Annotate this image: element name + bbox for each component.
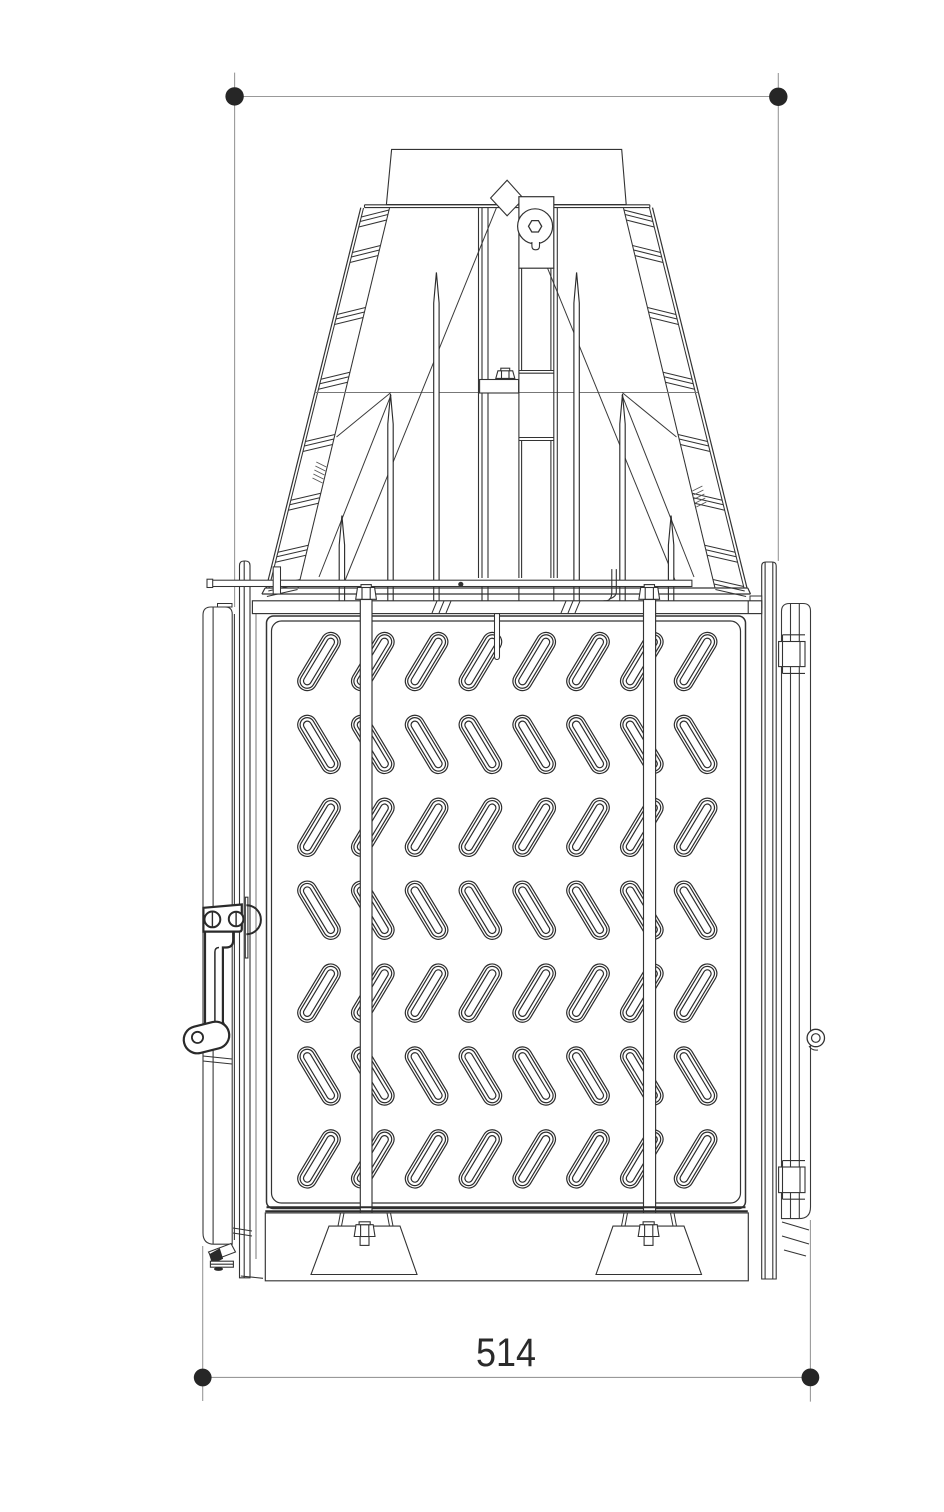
svg-text:514: 514 xyxy=(476,1331,536,1375)
